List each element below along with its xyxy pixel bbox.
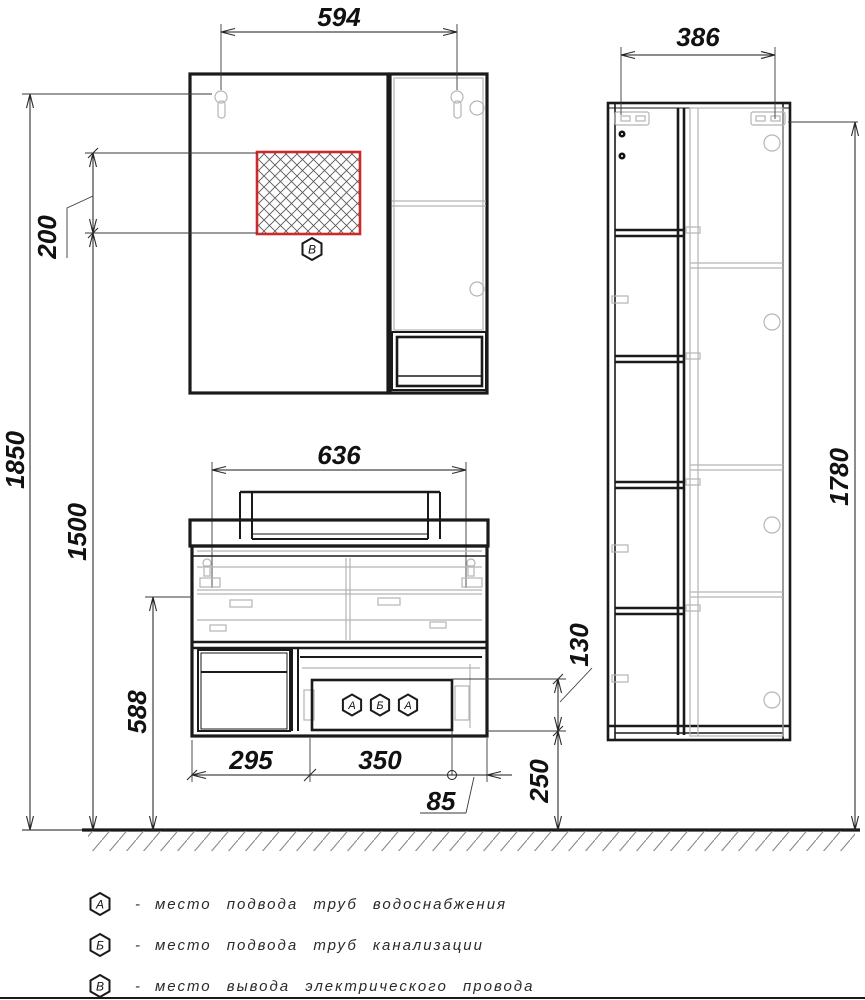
symbol-water-2: А (399, 695, 417, 716)
dim-label-130: 130 (564, 623, 594, 667)
dim-130-250: 130 250 (452, 623, 594, 830)
symbol-water-letter: А (347, 700, 355, 712)
legend-dash: - (135, 896, 142, 913)
hanger-plate-icon (751, 112, 785, 125)
countertop (190, 520, 488, 546)
dim-label-1780: 1780 (824, 448, 854, 506)
dim-label-594: 594 (317, 2, 361, 32)
door-hinge-icon (764, 314, 780, 330)
dim-label-295: 295 (228, 745, 273, 775)
dim-label-386: 386 (676, 22, 720, 52)
vanity-unit: А Б А (190, 462, 488, 736)
legend-row-water: А - место подвода труб водоснабжения (91, 893, 508, 915)
side-cabinet-door (394, 78, 483, 330)
mirror-side-cabinet (390, 74, 487, 393)
dim-chain-bottom: 295 350 85 (187, 731, 512, 816)
legend-text: место подвода труб канализации (155, 937, 484, 954)
dim-386: 386 (621, 22, 775, 119)
dim-label-636: 636 (317, 440, 361, 470)
symbol-sewage: Б (371, 695, 389, 716)
legend-text: место вывода электрического провода (155, 978, 534, 995)
door-hinge-icon (470, 282, 484, 296)
door-hinge-icon (764, 135, 780, 151)
dim-588: 588 (122, 597, 192, 830)
dim-label-1850: 1850 (0, 431, 30, 489)
floor-line (22, 830, 860, 851)
floor-hatch (88, 831, 855, 851)
legend-row-electric: В - место вывода электрического провода (91, 975, 535, 997)
dim-594: 594 (221, 2, 457, 90)
dim-1780: 1780 (788, 122, 859, 830)
dim-label-200: 200 (32, 215, 62, 260)
side-cabinet-open-shelf (392, 332, 486, 390)
symbol-water: А (343, 695, 361, 716)
symbol-electric-letter: В (308, 243, 316, 257)
keyhole-hanger-icon (467, 559, 475, 576)
legend-symbol: В (96, 980, 104, 994)
vanity-door (198, 650, 290, 731)
legend-text: место подвода труб водоснабжения (155, 896, 507, 913)
dim-label-588: 588 (122, 690, 152, 734)
column-door (690, 108, 783, 736)
installation-drawing-page: В 594 (0, 0, 865, 1000)
symbol-water2-letter: А (403, 700, 411, 712)
legend: А - место подвода труб водоснабжения Б -… (91, 893, 535, 997)
symbol-electric: В (303, 238, 322, 260)
legend-row-sewage: Б - место подвода труб канализации (91, 934, 485, 956)
symbol-sewage-letter: Б (376, 700, 383, 712)
door-hinge-icon (470, 101, 484, 115)
legend-dash: - (135, 978, 142, 995)
legend-symbol: Б (96, 939, 104, 953)
dim-636: 636 (212, 440, 466, 474)
technical-drawing: В 594 (0, 0, 865, 1000)
door-hinge-icon (764, 517, 780, 533)
dim-label-250: 250 (524, 759, 554, 804)
legend-symbol: А (95, 898, 104, 912)
keyhole-hanger-icon (215, 91, 227, 118)
tall-column-cabinet (608, 103, 790, 740)
dim-label-350: 350 (358, 745, 402, 775)
legend-dash: - (135, 937, 142, 954)
dim-label-1500: 1500 (62, 503, 92, 561)
open-shelves (608, 230, 790, 733)
washbasin (240, 492, 440, 539)
electric-outlet-zone (257, 152, 360, 234)
hanger-plate-icon (615, 112, 649, 125)
door-hinge-icon (764, 692, 780, 708)
dim-label-85: 85 (427, 786, 456, 816)
keyhole-hanger-icon (203, 559, 211, 576)
drawer-internals (197, 558, 482, 640)
dim-1850: 1850 (0, 94, 212, 830)
keyhole-hanger-icon (451, 91, 463, 118)
utility-zone-box: А Б А (312, 680, 452, 730)
mirror-cabinet: В (190, 74, 487, 393)
